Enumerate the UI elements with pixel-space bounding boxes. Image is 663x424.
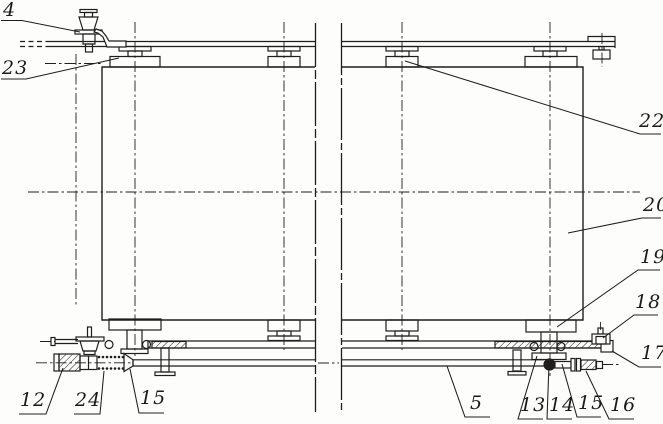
callout-17: 17 (641, 344, 663, 363)
callout-23: 23 (2, 59, 28, 78)
callout-12: 12 (20, 391, 46, 410)
callout-18: 18 (635, 293, 661, 312)
drawing-sheet: 4 23 22 20 19 18 17 16 15 14 13 5 15 24 … (0, 0, 663, 424)
bottom-guide (526, 320, 576, 360)
door-panel-left (102, 67, 315, 320)
trolley-hanger (525, 47, 577, 68)
leader-18 (603, 315, 658, 338)
callout-13: 13 (520, 396, 546, 415)
callout-22: 22 (639, 112, 663, 131)
callout-24: 24 (75, 391, 101, 410)
callout-15-left: 15 (140, 389, 166, 408)
callout-15-right: 15 (578, 394, 604, 413)
leader-22 (405, 61, 661, 134)
top-lock-bracket (75, 10, 126, 53)
leader-4 (1, 21, 80, 33)
break-lines (316, 23, 342, 413)
callout-14: 14 (549, 396, 575, 415)
drawing-canvas (0, 0, 663, 424)
leader-20 (568, 218, 661, 233)
leader-5 (447, 366, 490, 417)
callout-5: 5 (470, 394, 483, 413)
rail-end-stop (593, 47, 610, 60)
bottom-lock-bracket (51, 327, 113, 355)
latch-bar (148, 341, 613, 376)
center-lines (28, 22, 640, 376)
callout-20: 20 (643, 196, 663, 215)
callout-16: 16 (610, 396, 636, 415)
callout-4: 4 (3, 1, 16, 20)
latch-keeper (592, 328, 610, 344)
callout-19: 19 (640, 248, 663, 267)
latch-shaft (544, 359, 603, 372)
